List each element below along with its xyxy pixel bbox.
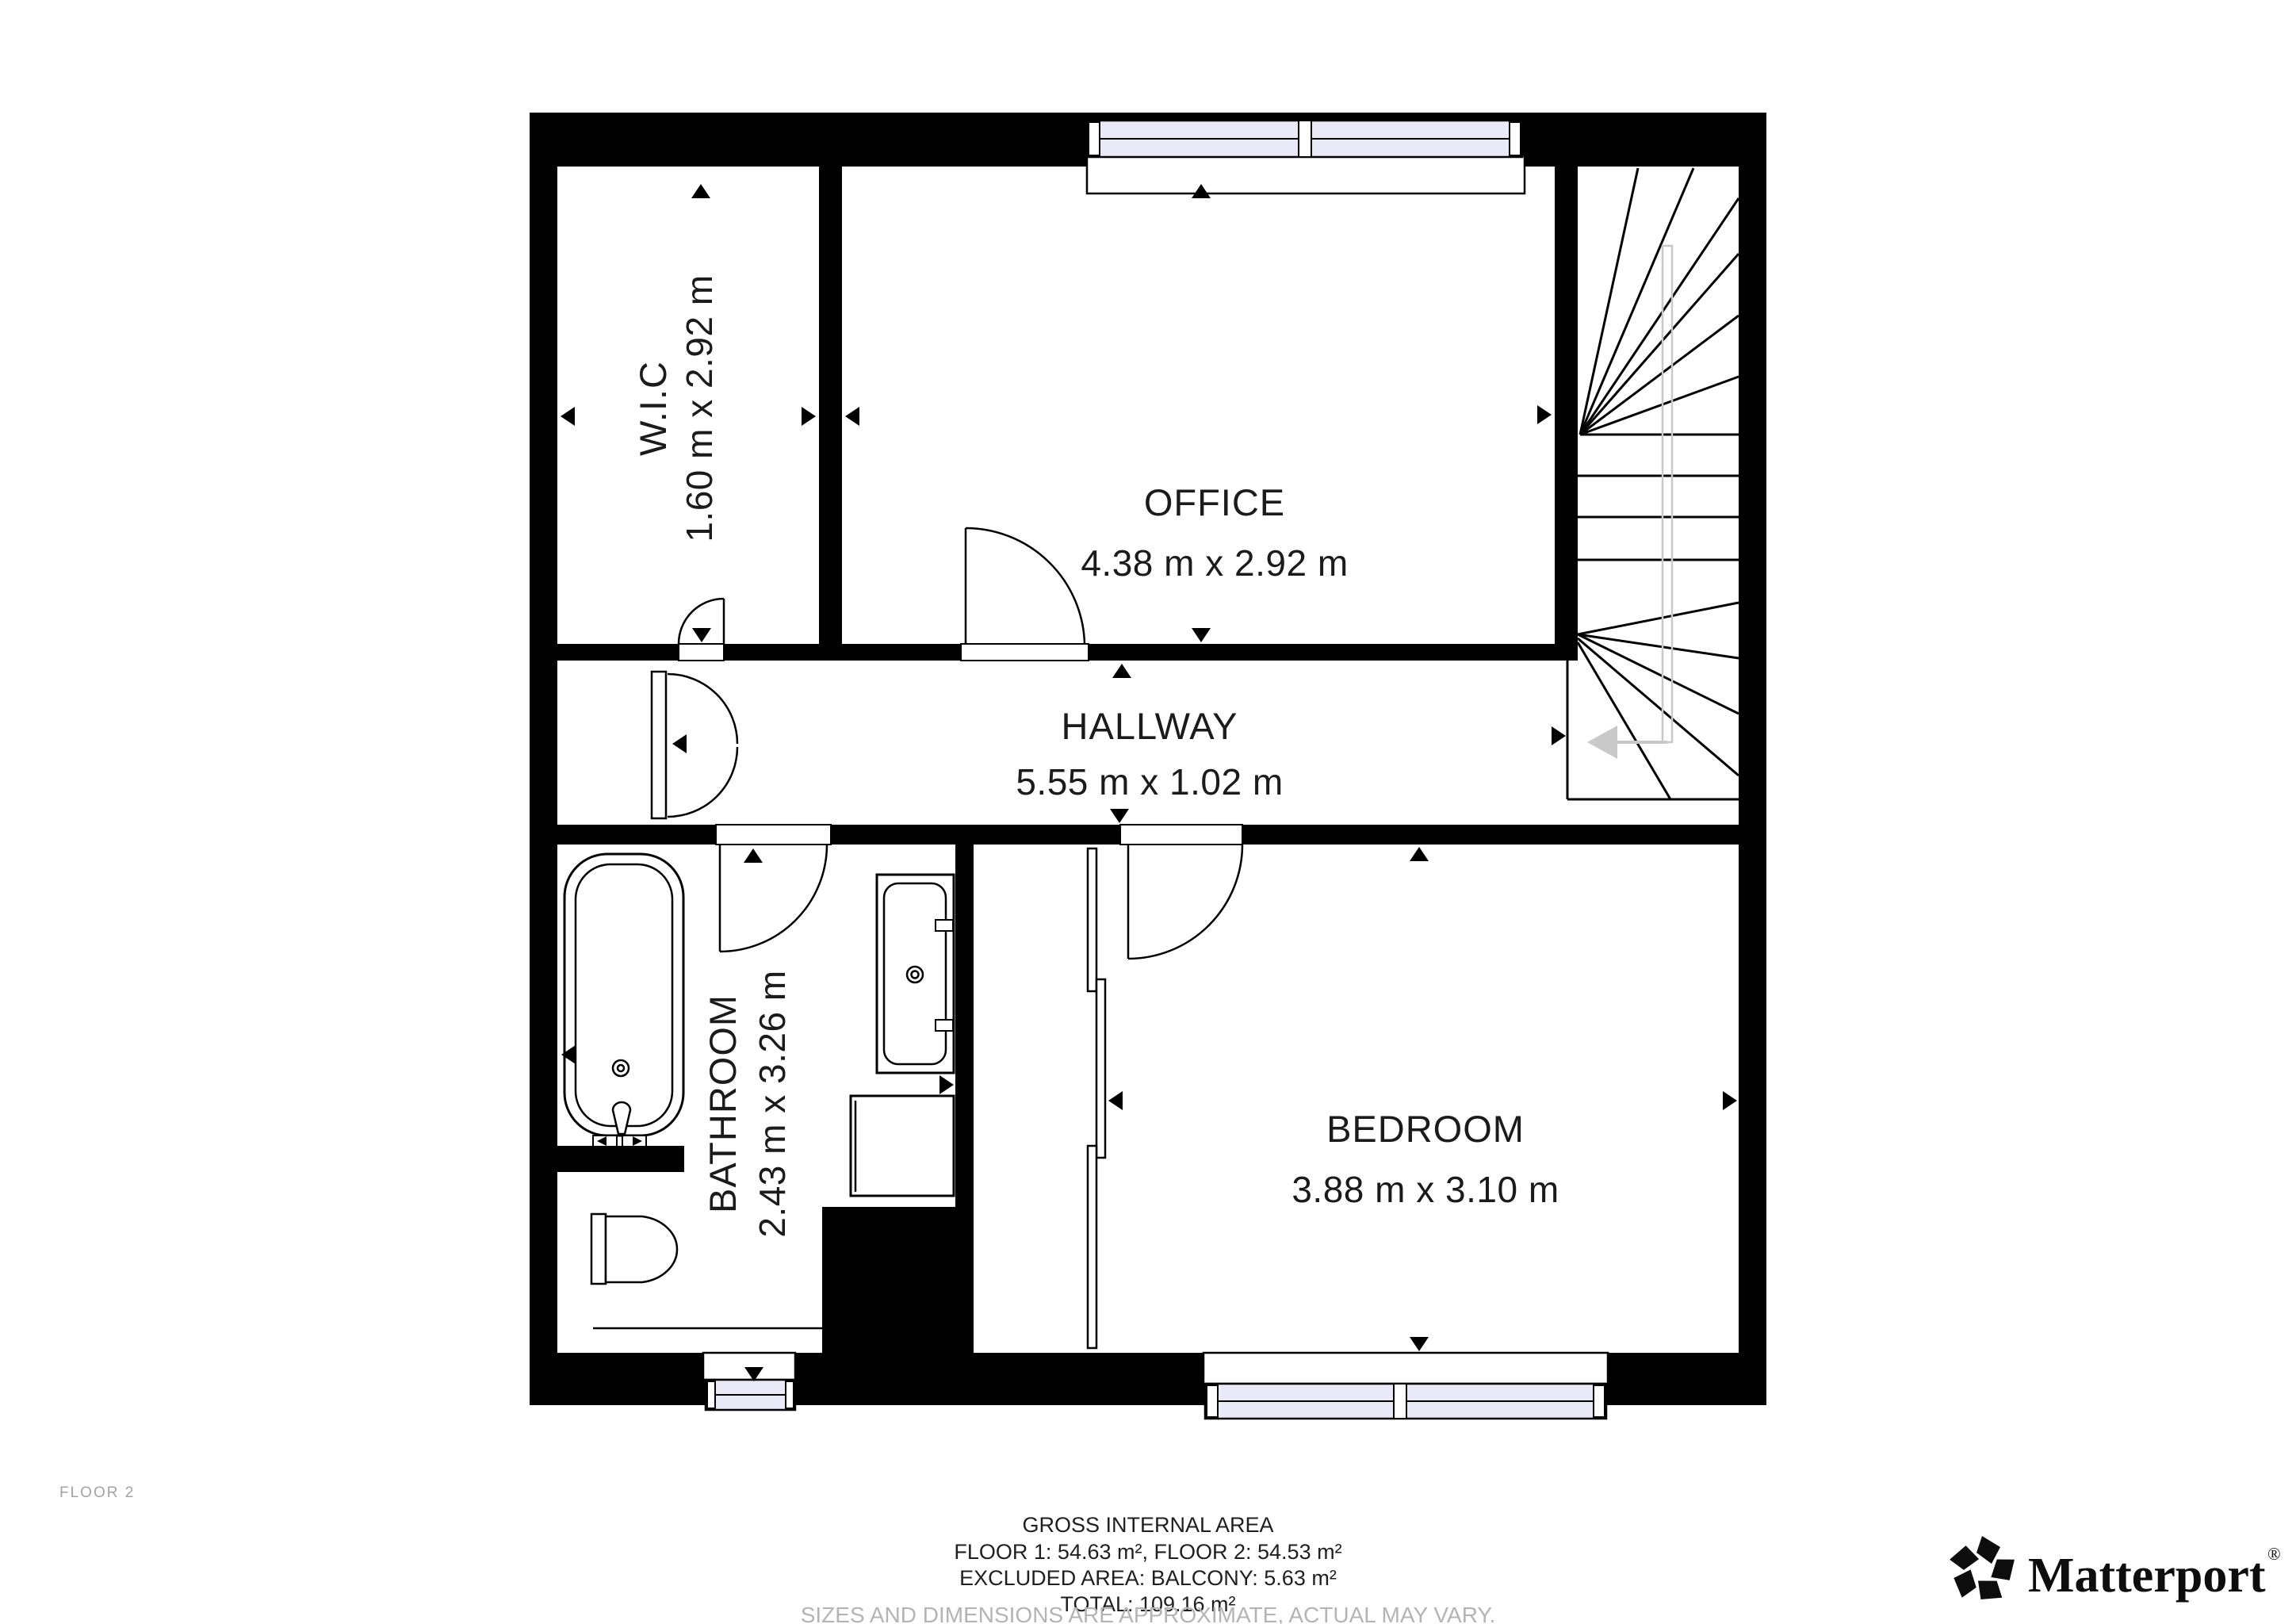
bedroom-window-sill	[1203, 1353, 1608, 1384]
bedroom-arrow-down	[1410, 1337, 1429, 1351]
bedroom-door-threshold	[1120, 825, 1242, 845]
matterport-wordmark: Matterport	[2028, 1549, 2266, 1603]
bathroom-vanity	[877, 875, 954, 1073]
hallway-room-name-text: HALLWAY	[1062, 705, 1238, 747]
office-room-name: OFFICE	[1144, 481, 1285, 523]
footer-area-summary: GROSS INTERNAL AREA FLOOR 1: 54.63 m², F…	[801, 1513, 1496, 1624]
bathroom-window-cap-left	[707, 1381, 715, 1408]
office-arrow-right	[1537, 405, 1552, 424]
wall-bathroom-bedroom	[955, 845, 974, 1207]
wall-left	[530, 113, 557, 1405]
bedroom-room-name: BEDROOM	[1326, 1108, 1525, 1150]
footer-excluded: EXCLUDED AREA: BALCONY: 5.63 m²	[959, 1566, 1337, 1590]
cabinet-body	[851, 1096, 954, 1196]
office-window-mullion	[1299, 121, 1311, 157]
toilet	[591, 1214, 677, 1284]
bathroom-room-dims: 2.43 m x 3.26 m	[752, 970, 793, 1237]
floor-plan-canvas: W.I.C 1.60 m x 2.92 m OFFICE 4.38 m x 2.…	[0, 0, 2296, 1624]
hallway-double-door	[652, 672, 737, 818]
sliding-panel-2	[1096, 979, 1105, 1158]
hallway-door-swing-lower	[668, 747, 737, 817]
office-window-cap-left	[1089, 122, 1100, 155]
stair-boundary	[1567, 661, 1739, 799]
office-arrow-left	[845, 407, 859, 426]
office-window-sill	[1087, 155, 1525, 193]
wall-hallway-bottom-a	[557, 825, 716, 845]
matterport-pinwheel-icon	[1947, 1536, 2020, 1608]
hallway-door-jamb	[652, 672, 666, 818]
hallway-door-swing-upper	[668, 674, 737, 744]
wall-hallway-top-a	[557, 644, 679, 661]
bathroom-arrow-right	[939, 1075, 954, 1094]
bathroom-door-threshold	[716, 825, 831, 845]
staircase	[1567, 168, 1739, 799]
office-door-swing	[966, 528, 1085, 644]
bathroom-room-name: BATHROOM	[702, 994, 744, 1213]
wic-arrow-down	[692, 628, 711, 642]
hallway-arrow-up	[1112, 664, 1131, 678]
bathtub	[564, 854, 683, 1147]
hallway-arrow-right	[1552, 726, 1566, 745]
bedroom-room-dims: 3.88 m x 3.10 m	[1291, 1169, 1559, 1210]
wic-arrow-right	[802, 407, 816, 426]
bedroom-arrow-left	[1108, 1091, 1123, 1110]
bedroom-window	[1203, 1353, 1608, 1419]
office-door	[966, 528, 1085, 644]
floor-plan-page: W.I.C 1.60 m x 2.92 m OFFICE 4.38 m x 2.…	[0, 0, 2296, 1624]
toilet-cistern	[591, 1214, 606, 1284]
bedroom-arrow-up	[1410, 847, 1429, 861]
stair-down-arrow-icon	[1587, 726, 1617, 759]
wall-right	[1739, 113, 1766, 1405]
matterport-registered-mark: ®	[2267, 1544, 2281, 1564]
bedroom-arrow-right	[1723, 1091, 1737, 1110]
wall-tub-stub	[557, 1146, 684, 1172]
wic-arrow-up	[691, 184, 710, 198]
matterport-logo: Matterport ®	[1947, 1536, 2281, 1608]
office-door-threshold	[961, 644, 1089, 661]
bedroom-closet-sliding-doors	[1088, 848, 1105, 1348]
bathtub-inner	[576, 864, 672, 1126]
bathroom-window-cap-right	[786, 1381, 794, 1408]
bathroom-window-sill	[703, 1353, 795, 1380]
bedroom-door-swing	[1128, 845, 1242, 959]
wall-block-bathroom-se	[822, 1207, 974, 1353]
wic-room-dims: 1.60 m x 2.92 m	[679, 274, 720, 542]
hallway-arrow-left	[672, 734, 687, 753]
footer-disclaimer: SIZES AND DIMENSIONS ARE APPROXIMATE, AC…	[801, 1603, 1496, 1624]
bedroom-window-cap-right	[1594, 1385, 1605, 1417]
floor-label: FLOOR 2	[59, 1484, 135, 1501]
bathroom-window	[703, 1353, 795, 1410]
wic-door-threshold	[679, 644, 724, 661]
wall-hallway-bottom-b	[831, 825, 1120, 845]
stair-treads	[1578, 168, 1739, 799]
bathroom-door	[720, 845, 827, 952]
sliding-panel-3	[1088, 1146, 1096, 1348]
bathroom-cabinet	[851, 1096, 954, 1196]
office-arrow-down	[1192, 628, 1211, 642]
stair-guide-path	[1663, 246, 1672, 742]
bathroom-arrow-up	[744, 848, 763, 863]
office-window	[1087, 121, 1525, 193]
hallway-arrow-down	[1110, 809, 1129, 823]
wall-hallway-top-c	[1089, 644, 1555, 661]
bedroom-window-mullion	[1394, 1384, 1406, 1419]
bedroom-door	[1128, 845, 1242, 959]
footer-floors: FLOOR 1: 54.63 m², FLOOR 2: 54.53 m²	[954, 1540, 1341, 1564]
wall-office-stairs	[1555, 167, 1578, 661]
toilet-bowl	[606, 1216, 677, 1282]
bathroom-door-swing	[720, 845, 827, 952]
wic-room-name: W.I.C	[632, 361, 674, 456]
wall-hallway-bottom-c	[1242, 825, 1739, 845]
wic-arrow-left	[561, 407, 575, 426]
wall-hallway-top-b	[724, 644, 961, 661]
footer-title: GROSS INTERNAL AREA	[1022, 1513, 1273, 1537]
office-window-cap-right	[1510, 122, 1521, 155]
bedroom-window-cap-left	[1207, 1385, 1218, 1417]
hallway-room-dims: 5.55 m x 1.02 m	[1016, 761, 1283, 802]
vanity-bracket-top	[936, 920, 953, 931]
office-room-dims: 4.38 m x 2.92 m	[1081, 542, 1348, 584]
sliding-panel-1	[1088, 848, 1096, 991]
vanity-bracket-bottom	[936, 1020, 953, 1031]
wall-wic-office	[819, 167, 842, 644]
bathtub-drain-inner	[618, 1065, 624, 1071]
vanity-faucet-inner	[912, 971, 919, 979]
